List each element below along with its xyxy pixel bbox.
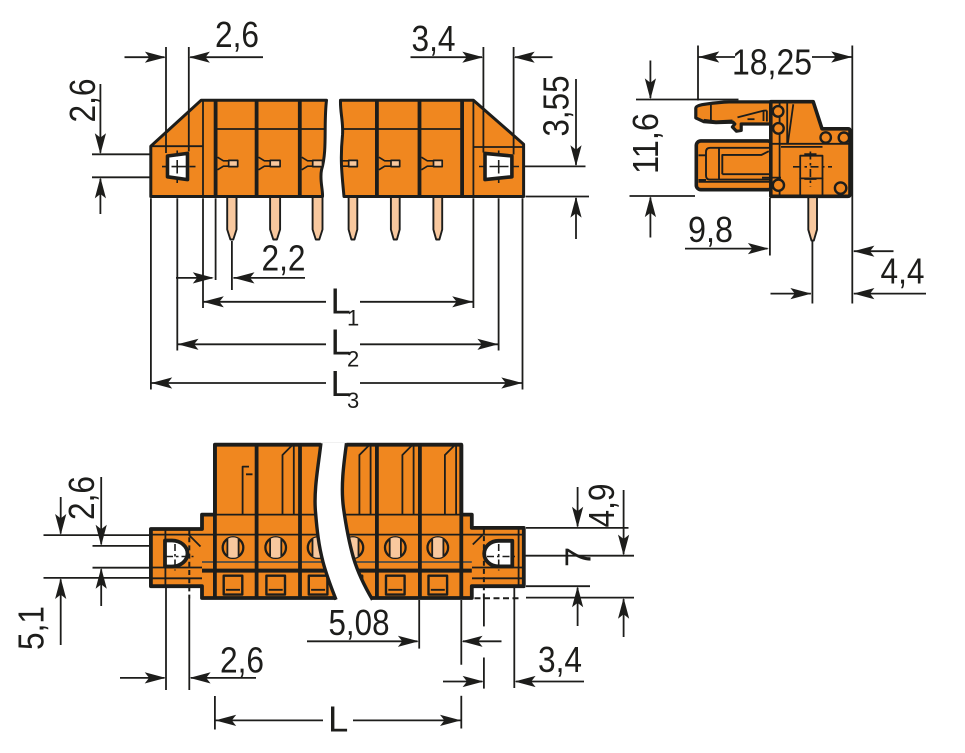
svg-text:2,6: 2,6: [220, 640, 264, 681]
svg-text:11,6: 11,6: [625, 113, 666, 174]
svg-text:4,4: 4,4: [881, 251, 925, 292]
svg-text:5,08: 5,08: [329, 602, 390, 643]
svg-text:7: 7: [558, 547, 599, 567]
svg-text:3,4: 3,4: [412, 18, 456, 59]
svg-text:9,8: 9,8: [688, 209, 733, 250]
svg-text:2,6: 2,6: [62, 79, 103, 123]
svg-text:2,6: 2,6: [61, 476, 102, 520]
svg-text:2,6: 2,6: [215, 14, 259, 55]
svg-text:3: 3: [347, 388, 359, 413]
svg-text:2,2: 2,2: [262, 238, 306, 279]
svg-text:3,4: 3,4: [538, 639, 582, 680]
svg-text:L: L: [328, 699, 348, 740]
svg-text:3,55: 3,55: [536, 76, 577, 137]
svg-text:4,9: 4,9: [581, 484, 622, 528]
svg-text:18,25: 18,25: [732, 42, 812, 83]
svg-text:5,1: 5,1: [11, 606, 52, 650]
